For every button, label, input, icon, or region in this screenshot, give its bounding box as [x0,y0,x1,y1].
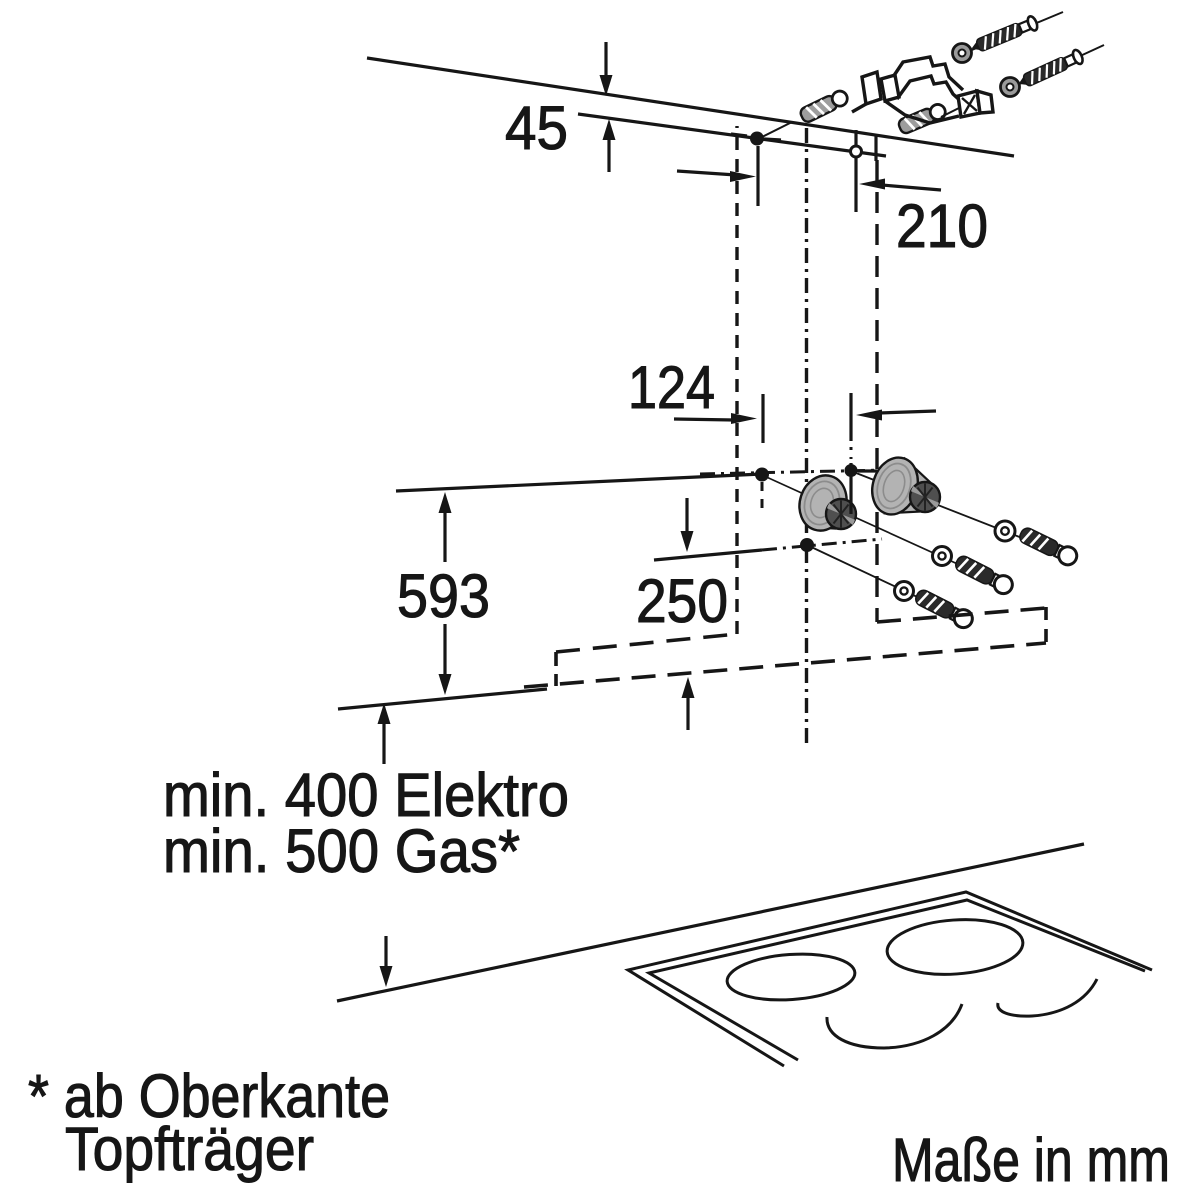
svg-text:Topfträger: Topfträger [65,1115,314,1183]
svg-text:45: 45 [505,94,568,162]
svg-text:593: 593 [397,562,490,630]
svg-text:min. 500 Gas*: min. 500 Gas* [163,817,520,885]
svg-text:Maße in mm: Maße in mm [892,1126,1170,1194]
svg-text:250: 250 [636,567,728,635]
svg-text:210: 210 [896,192,988,260]
svg-text:124: 124 [628,354,715,421]
